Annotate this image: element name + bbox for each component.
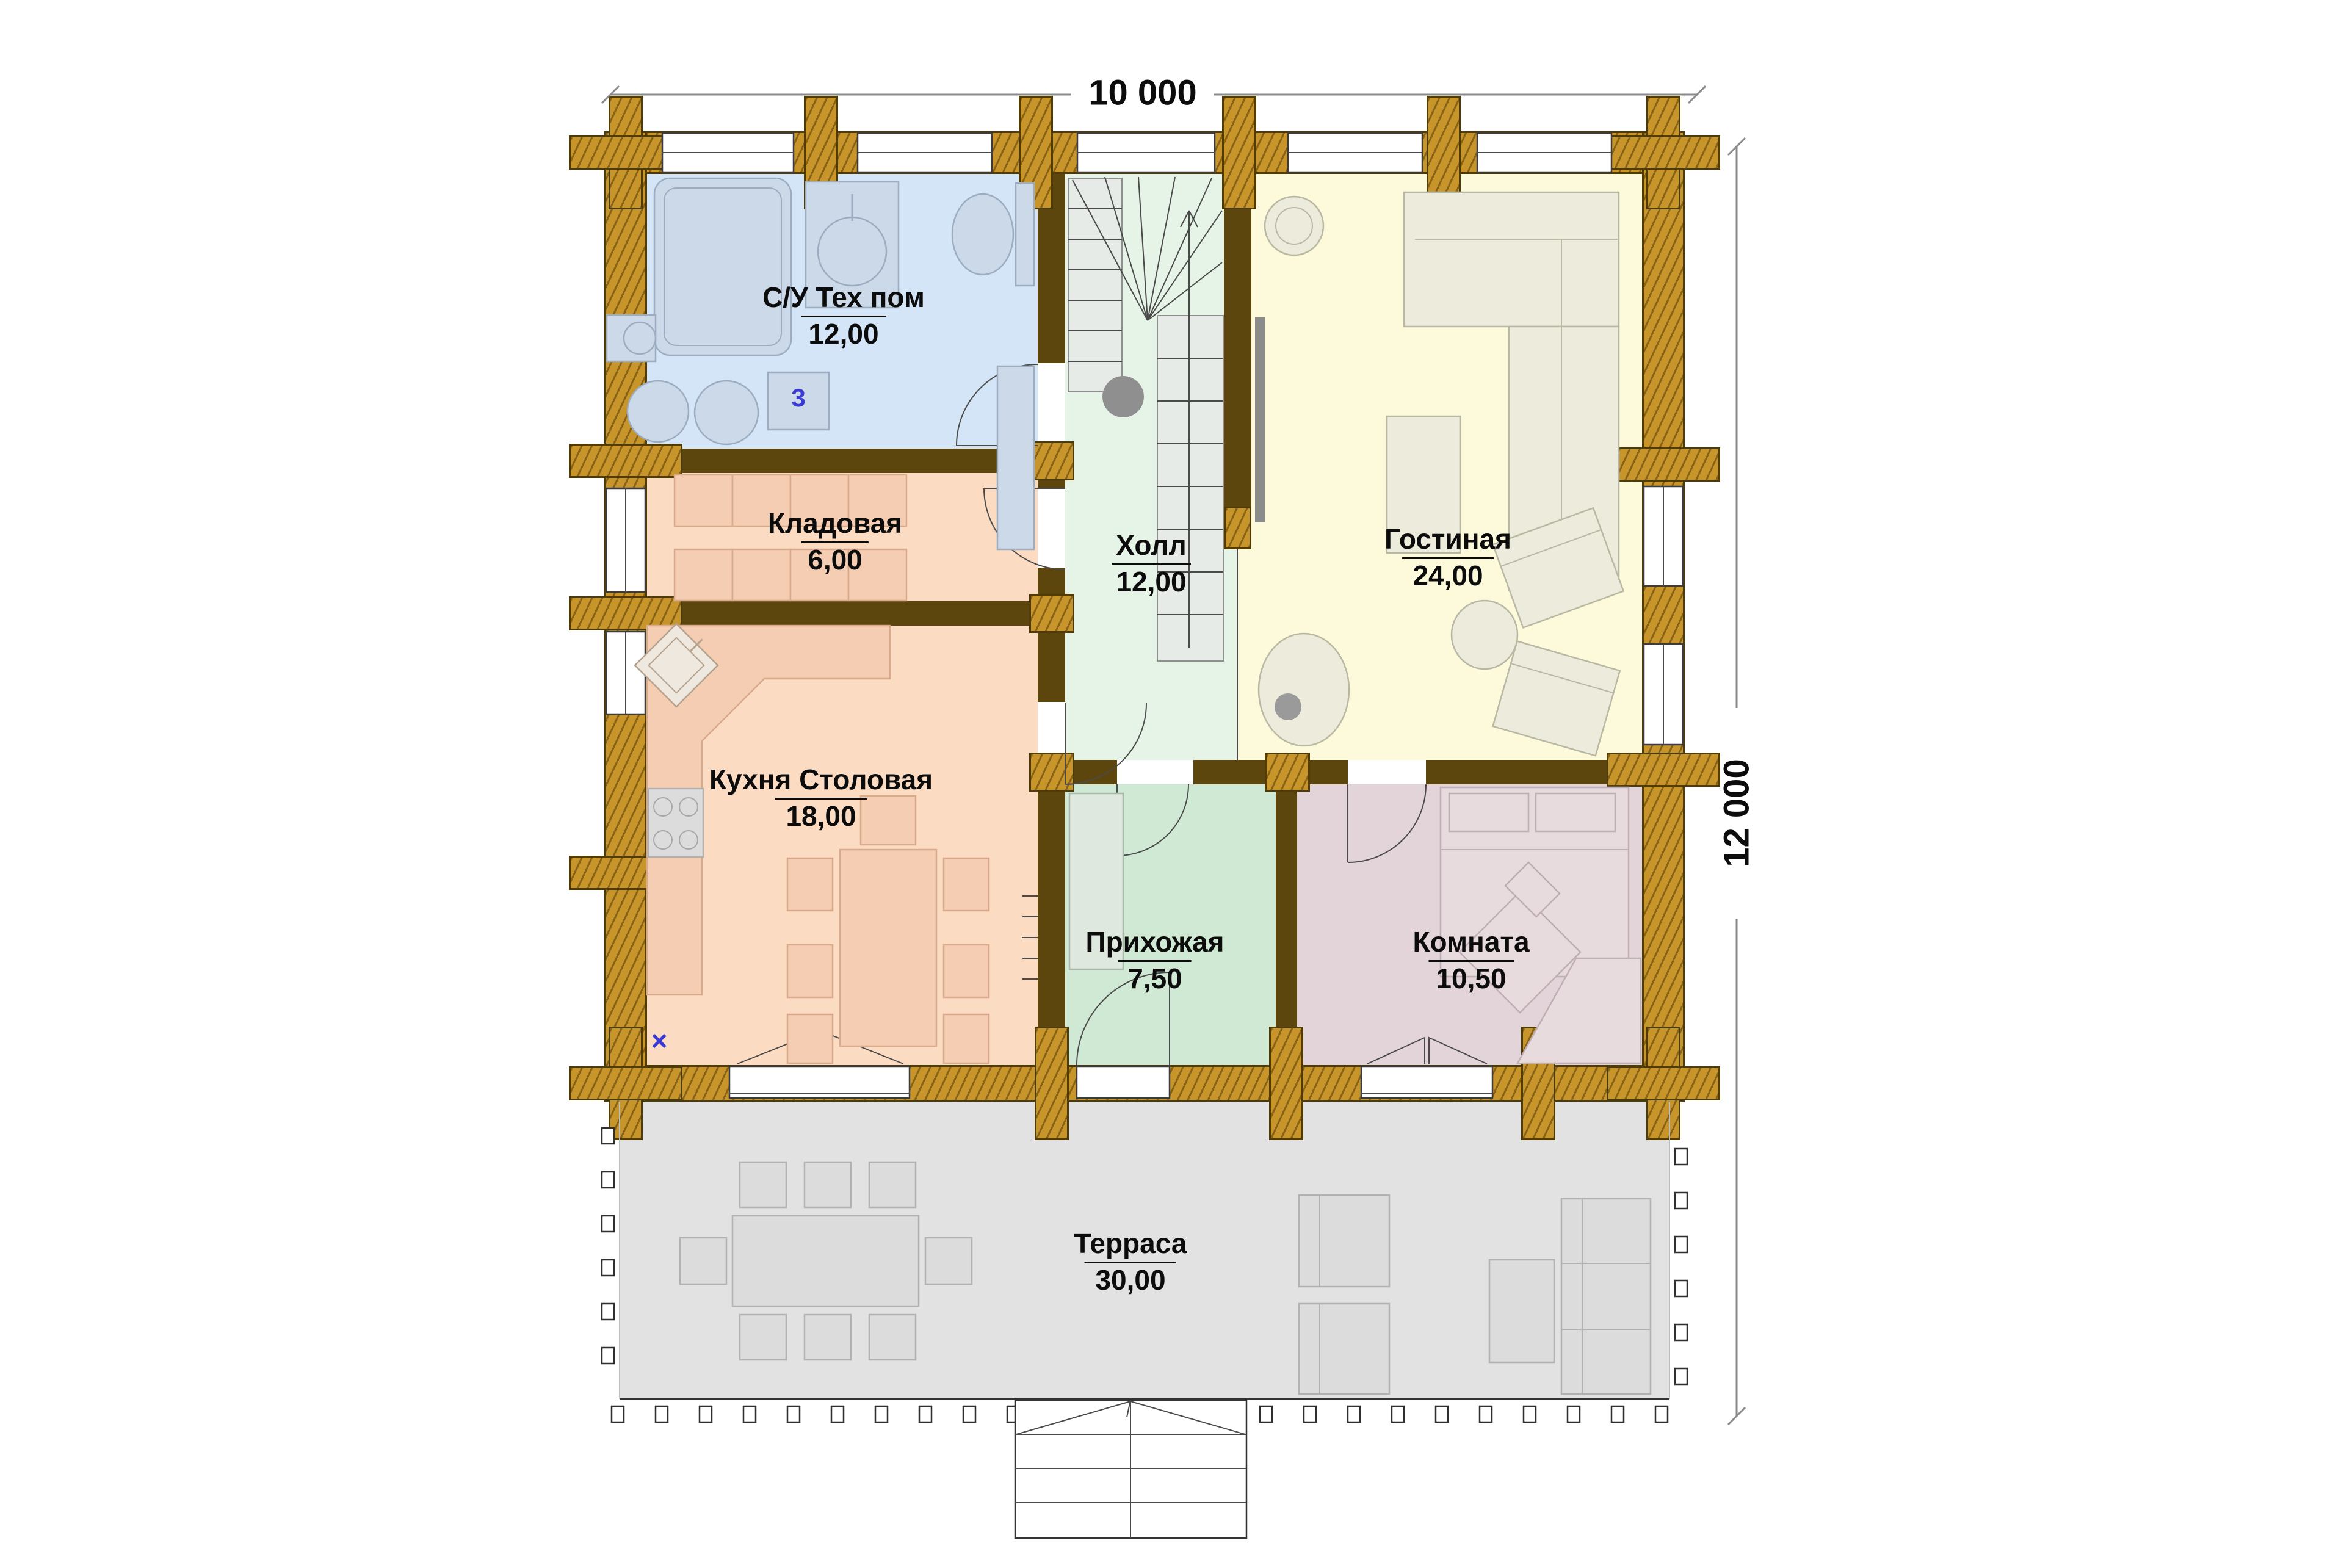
log-post <box>1607 447 1720 482</box>
log-post <box>1019 96 1053 209</box>
room-name: С/У Тех пом <box>762 282 925 313</box>
label-divider <box>1112 563 1191 565</box>
log-post <box>569 1066 682 1100</box>
room-label-terrasa: Терраса 30,00 <box>1074 1228 1187 1295</box>
room-name: Комната <box>1413 927 1529 958</box>
room-area: 6,00 <box>768 544 902 576</box>
log-post <box>1029 753 1074 792</box>
wall-top <box>604 131 1685 174</box>
log-post <box>569 135 682 170</box>
room-area: 7,50 <box>1086 963 1224 994</box>
room-floor-holl <box>1065 174 1237 760</box>
room-name: Кухня Столовая <box>709 764 933 795</box>
room-name: Гостиная <box>1384 524 1511 555</box>
log-post <box>1607 753 1720 787</box>
label-divider <box>801 541 869 543</box>
dimension-width: 10 000 <box>1088 73 1196 114</box>
room-label-prihozhaya: Прихожая 7,50 <box>1086 927 1224 994</box>
entrance-steps <box>1015 1400 1246 1538</box>
partition-v1c <box>1038 568 1065 702</box>
room-area: 12,00 <box>762 319 925 350</box>
log-post <box>1521 1027 1555 1140</box>
label-divider <box>1118 960 1192 962</box>
log-post <box>1029 441 1074 480</box>
room-floor-komnata <box>1297 784 1642 1065</box>
log-post <box>569 444 682 478</box>
log-post <box>1427 96 1461 209</box>
log-post <box>804 96 838 209</box>
room-floor-prihozhaya <box>1065 784 1276 1065</box>
dimension-height: 12 000 <box>1716 759 1757 867</box>
log-post <box>1029 594 1074 633</box>
room-floor-kuhnya <box>647 626 1038 1065</box>
marker-x: × <box>651 1024 668 1057</box>
room-label-gostinaya: Гостиная 24,00 <box>1384 524 1511 591</box>
label-divider <box>801 316 886 317</box>
room-floor-gostinaya <box>1237 174 1642 760</box>
room-label-kladovaya: Кладовая 6,00 <box>768 508 902 575</box>
partition-v3 <box>1276 784 1297 1065</box>
wall-right <box>1642 131 1685 1102</box>
label-divider <box>1085 1262 1176 1263</box>
room-name: Прихожая <box>1086 927 1224 958</box>
log-post <box>1222 96 1256 209</box>
room-area: 12,00 <box>1112 566 1191 598</box>
label-divider <box>775 798 867 800</box>
log-post <box>1224 507 1251 549</box>
log-post <box>1607 135 1720 170</box>
room-area: 30,00 <box>1074 1265 1187 1296</box>
room-name: Терраса <box>1074 1228 1187 1259</box>
room-area: 10,50 <box>1413 963 1529 994</box>
room-area: 24,00 <box>1384 560 1511 591</box>
partition-v2 <box>1224 174 1251 507</box>
log-post <box>1269 1027 1303 1140</box>
log-post <box>1035 1027 1069 1140</box>
room-label-komnata: Комната 10,50 <box>1413 927 1529 994</box>
room-name: Кладовая <box>768 508 902 539</box>
room-area: 18,00 <box>709 801 933 832</box>
log-post <box>569 596 682 630</box>
label-divider <box>1402 557 1494 559</box>
marker-unit3: 3 <box>791 383 805 413</box>
partition-h1 <box>647 449 1065 473</box>
log-post <box>1265 753 1310 792</box>
log-post <box>569 856 682 890</box>
room-name: Холл <box>1112 530 1191 561</box>
floor-plan: С/У Тех пом 12,00 Кладовая 6,00 Кухня Ст… <box>0 0 2344 1568</box>
partition-v1d <box>1038 760 1065 1065</box>
partition-h2 <box>647 601 1065 626</box>
room-label-holl: Холл 12,00 <box>1112 530 1191 597</box>
room-label-su: С/У Тех пом 12,00 <box>762 282 925 349</box>
label-divider <box>1428 960 1514 962</box>
room-label-kuhnya: Кухня Столовая 18,00 <box>709 764 933 831</box>
log-post <box>1607 1066 1720 1100</box>
